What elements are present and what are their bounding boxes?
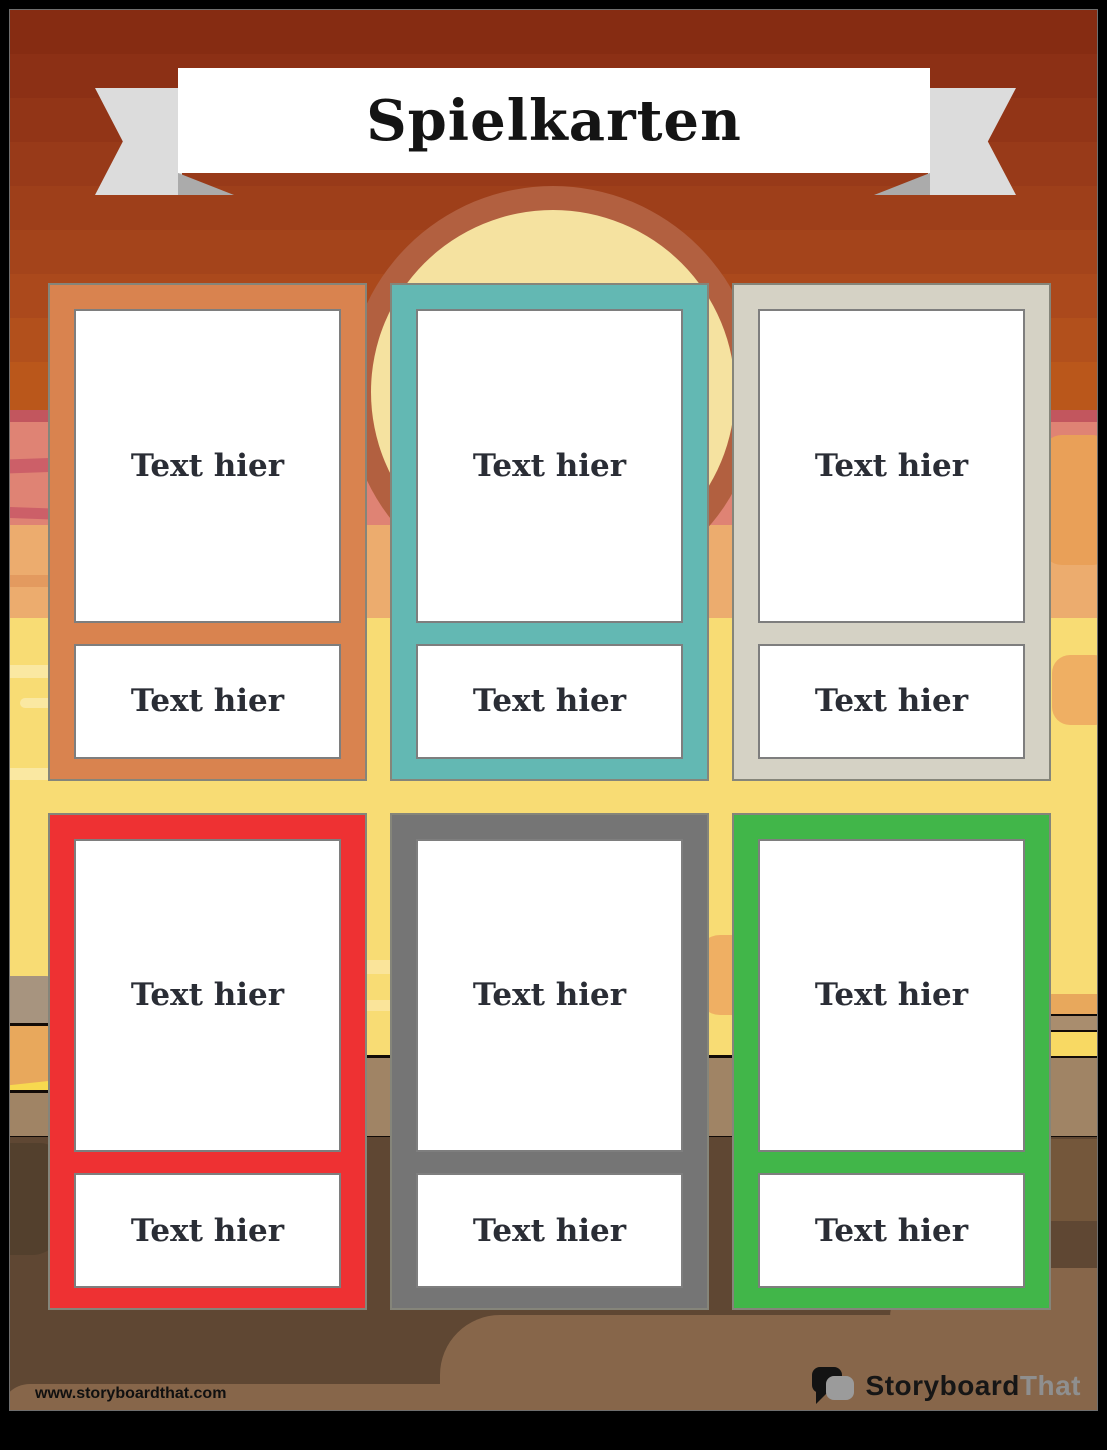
card-text-placeholder[interactable]: Text hier (131, 683, 284, 719)
card-text-placeholder[interactable]: Text hier (473, 448, 626, 484)
page-title[interactable]: Spielkarten (366, 88, 742, 154)
card-caption-panel[interactable]: Text hier (416, 644, 683, 759)
logo-text-storyboard: Storyboard (866, 1370, 1020, 1401)
sand-streak (1052, 655, 1097, 725)
card-caption-panel[interactable]: Text hier (74, 644, 341, 759)
card-text-placeholder[interactable]: Text hier (473, 683, 626, 719)
logo-text-that: That (1020, 1370, 1081, 1401)
card-text-placeholder[interactable]: Text hier (473, 977, 626, 1013)
card-image-panel[interactable]: Text hier (416, 839, 683, 1153)
game-card[interactable]: Text hier Text hier (390, 283, 709, 781)
rock-right (1048, 994, 1097, 1016)
ribbon-tail-right (928, 88, 1016, 195)
card-text-placeholder[interactable]: Text hier (131, 1213, 284, 1249)
card-caption-panel[interactable]: Text hier (416, 1173, 683, 1288)
card-text-placeholder[interactable]: Text hier (473, 1213, 626, 1249)
card-image-panel[interactable]: Text hier (758, 839, 1025, 1153)
card-image-panel[interactable]: Text hier (416, 309, 683, 623)
rock-right (1048, 1032, 1097, 1058)
game-card[interactable]: Text hier Text hier (48, 813, 367, 1311)
card-image-panel[interactable]: Text hier (74, 839, 341, 1153)
card-caption-panel[interactable]: Text hier (74, 1173, 341, 1288)
game-card[interactable]: Text hier Text hier (390, 813, 709, 1311)
logo-wordmark: StoryboardThat (866, 1370, 1081, 1402)
desert-sunset-background: Spielkarten Text hier Text hier Text hie… (10, 10, 1097, 1410)
ribbon-fold-right (874, 173, 930, 195)
card-text-placeholder[interactable]: Text hier (815, 977, 968, 1013)
ribbon-fold-left (178, 173, 234, 195)
card-grid: Text hier Text hier Text hier Text hier … (48, 283, 1051, 1310)
game-card[interactable]: Text hier Text hier (48, 283, 367, 781)
card-text-placeholder[interactable]: Text hier (815, 1213, 968, 1249)
website-url: www.storyboardthat.com (35, 1385, 226, 1403)
game-card[interactable]: Text hier Text hier (732, 283, 1051, 781)
rock-right (1048, 1016, 1097, 1032)
card-text-placeholder[interactable]: Text hier (815, 448, 968, 484)
card-caption-panel[interactable]: Text hier (758, 1173, 1025, 1288)
card-caption-panel[interactable]: Text hier (758, 644, 1025, 759)
card-text-placeholder[interactable]: Text hier (131, 448, 284, 484)
ribbon-tail-left (95, 88, 182, 195)
card-image-panel[interactable]: Text hier (758, 309, 1025, 623)
worksheet-page: Spielkarten Text hier Text hier Text hie… (0, 0, 1107, 1450)
speech-bubble-front (826, 1376, 854, 1400)
speech-bubbles-icon (812, 1365, 858, 1407)
storyboardthat-logo: StoryboardThat (812, 1362, 1081, 1410)
game-card[interactable]: Text hier Text hier (732, 813, 1051, 1311)
title-banner: Spielkarten (178, 68, 930, 173)
card-text-placeholder[interactable]: Text hier (131, 977, 284, 1013)
card-image-panel[interactable]: Text hier (74, 309, 341, 623)
card-text-placeholder[interactable]: Text hier (815, 683, 968, 719)
